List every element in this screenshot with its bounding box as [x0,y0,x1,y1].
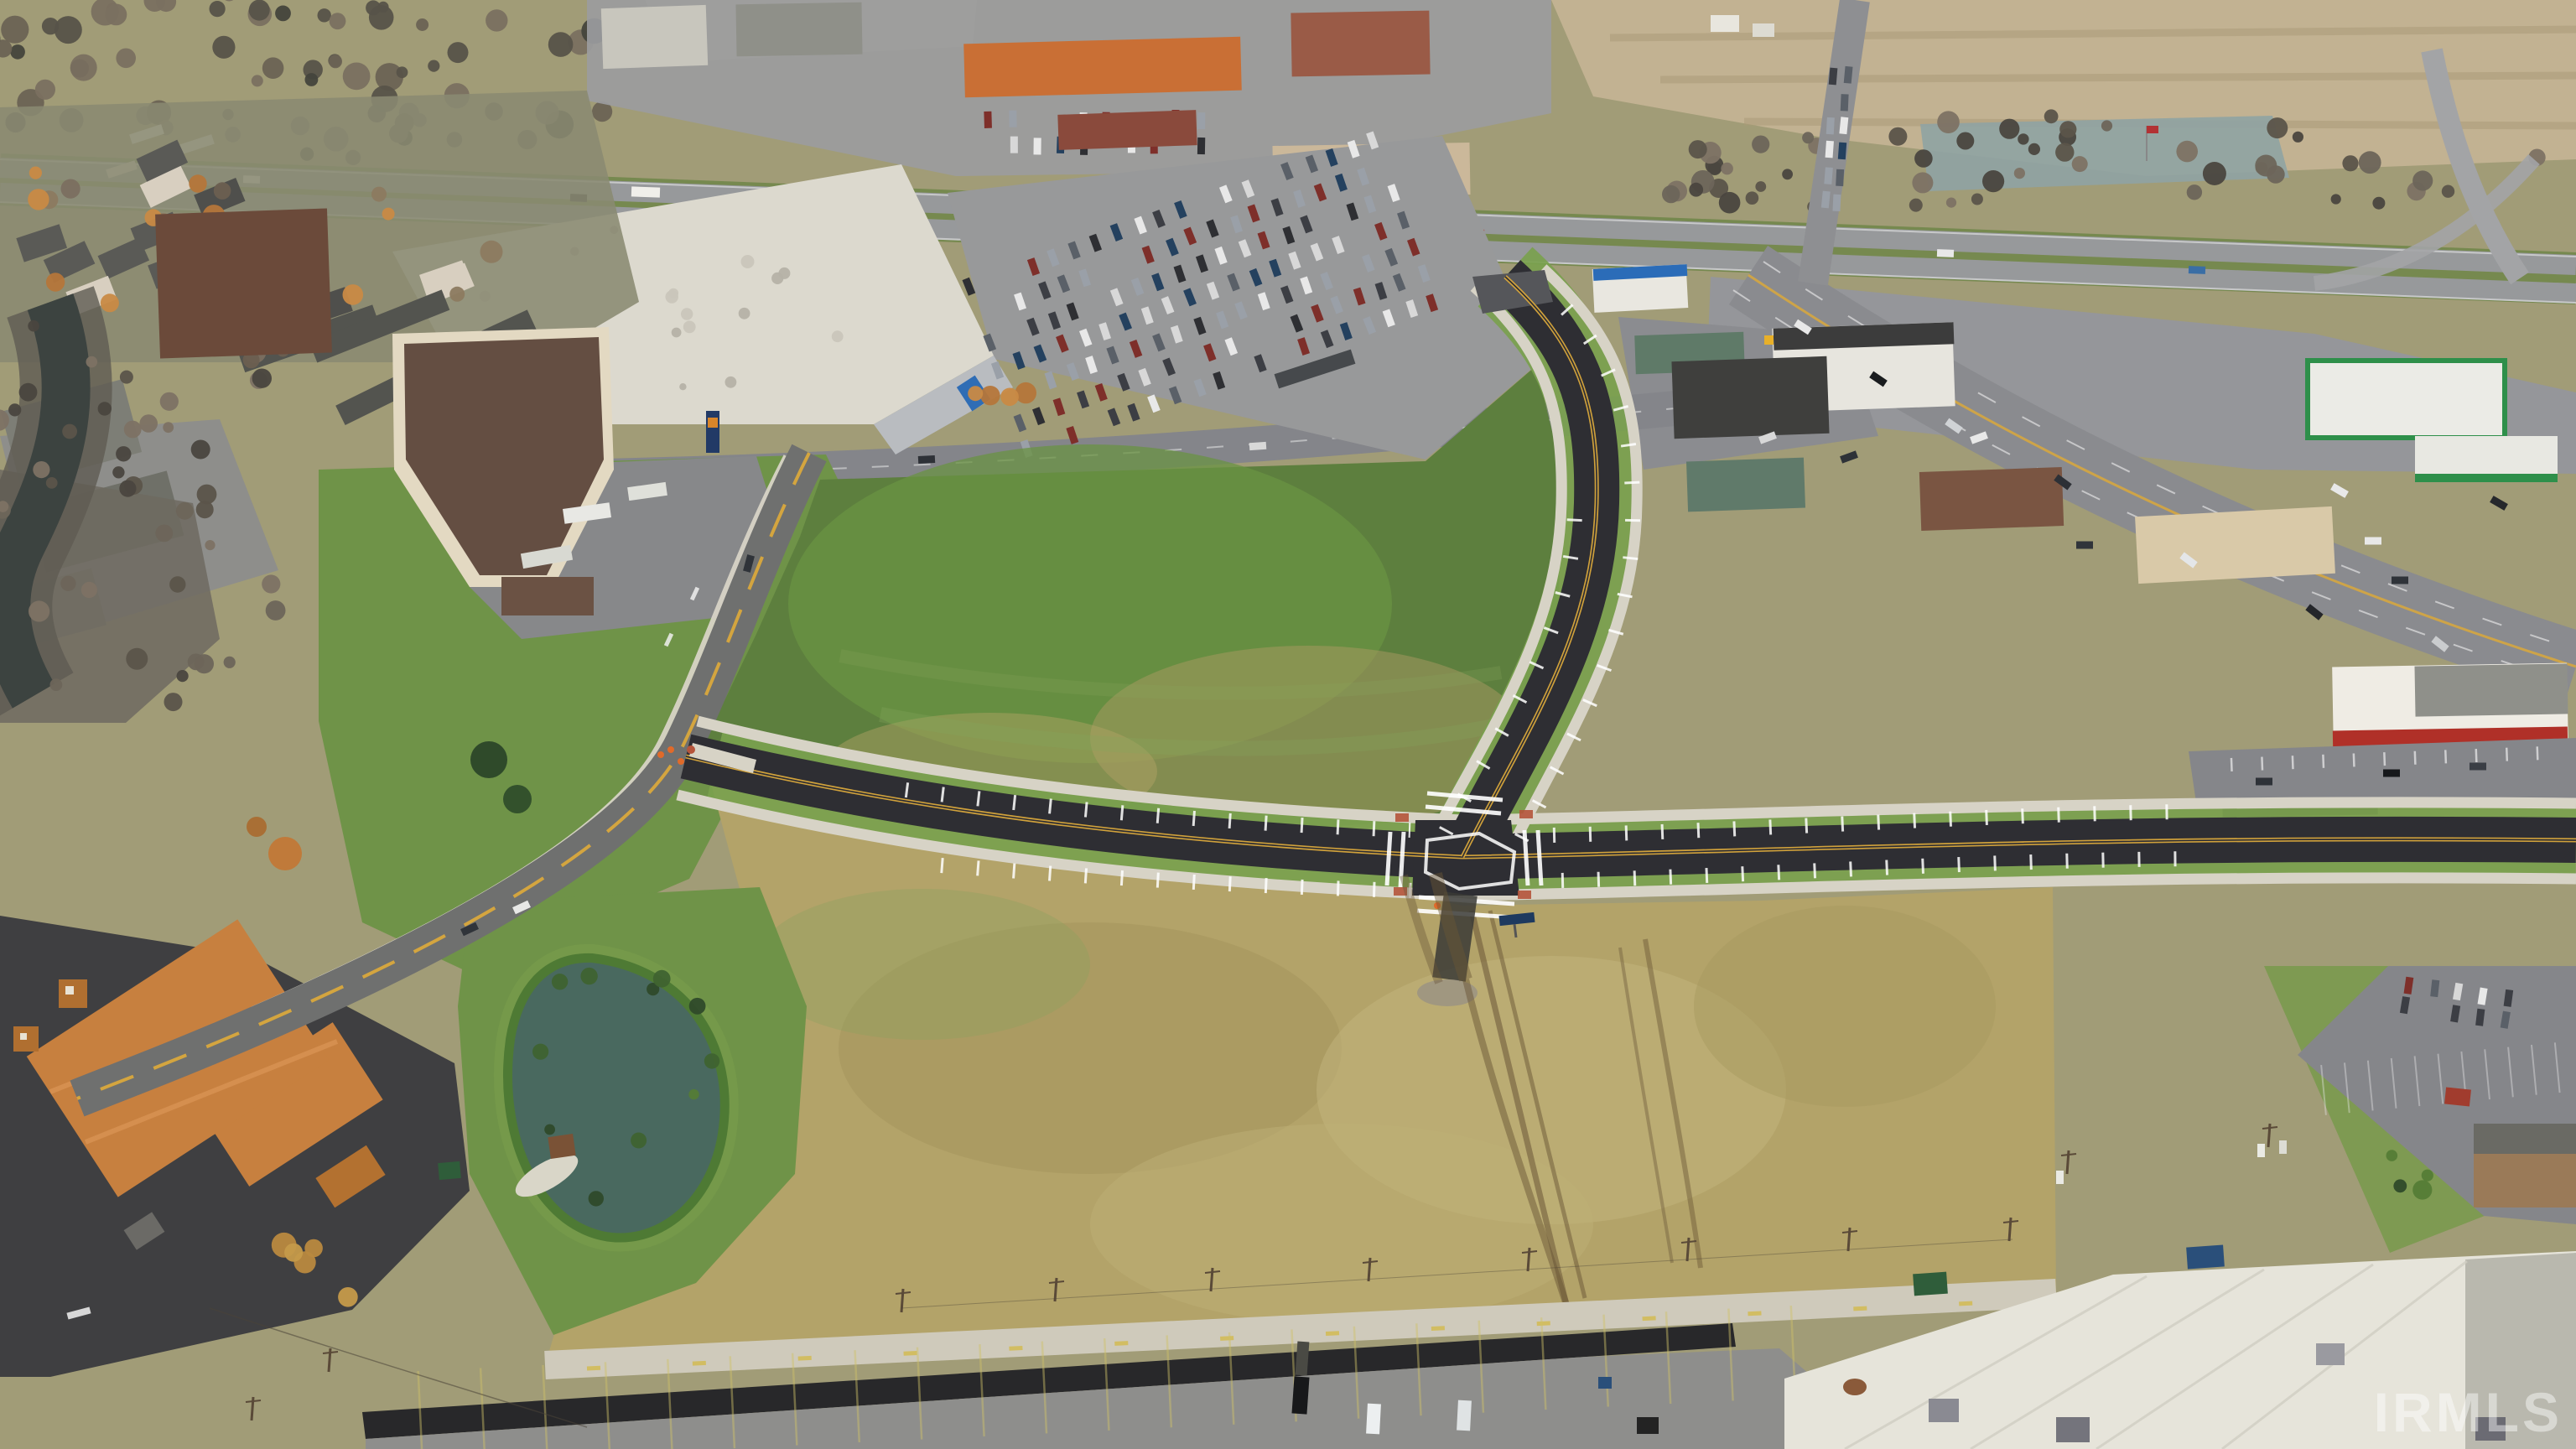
forest-top-left [548,32,574,57]
river-trees [33,461,49,478]
dirt-mottle [1694,906,1996,1107]
residential-trees [449,287,465,302]
bp-store-stripe [2415,474,2558,482]
forest-top-left [275,6,291,22]
blue-cart [1598,1377,1612,1389]
residential-trees [214,182,231,200]
treeline-right [2342,155,2358,171]
treeline-right [2203,162,2226,185]
comfort-pylon-sign [706,411,719,453]
pond-shrubs [688,1089,699,1099]
walmart-lot-trees [968,386,983,401]
treeline-right [2442,185,2454,198]
walmart-roof-units [739,308,750,319]
residential-trees [189,174,206,192]
cupola-window [20,1033,27,1040]
river-trees [98,402,112,415]
forest-top-left [105,4,127,26]
walmart-roof-units [683,321,696,334]
green-dumpster [1913,1272,1948,1296]
rooftop-unit [2056,1417,2090,1442]
forest-top-left [397,66,408,78]
pond-shrubs [653,970,671,988]
walmart-roof-units [666,290,678,303]
river-trees [81,582,97,598]
burger-king-lot-car [2392,577,2408,584]
forest-top-left [343,63,371,91]
home-depot-lot-cars [1197,112,1205,129]
forest-top-left [448,42,469,63]
trash-bins [1637,1417,1659,1434]
sign-post [1514,924,1516,937]
pond-shrubs [544,1124,555,1135]
river-trees [124,421,142,439]
forest-top-left [305,73,319,86]
river-trees [8,403,21,416]
us-flag [2147,126,2158,133]
splitter-nose [687,745,695,754]
cross-street-traffic [1836,169,1844,186]
river-trees [29,600,49,621]
forest-top-left [212,36,235,59]
treeline-right [2267,117,2288,138]
blue-dumpster [2186,1244,2225,1269]
home-depot-lot-cars [1033,138,1041,154]
forest-top-left [486,9,507,31]
treeline-right [1782,169,1793,179]
bp-canopy [2308,361,2505,438]
dark-shingle-building [1671,356,1829,439]
wooden-kiosk [548,1134,575,1159]
conifer-tree [503,785,532,813]
autumn-shrubs [284,1244,303,1262]
home-depot-lot-cars [1009,111,1016,127]
treeline-right [1888,127,1907,146]
white-car [1457,1400,1472,1431]
pond-shrubs [552,974,568,989]
river-trees [266,600,286,621]
autumn-tree [247,817,267,837]
walmart-roof-units [725,377,737,388]
river-trees [120,371,133,384]
brick-restaurant [1919,467,2064,531]
residential-trees [61,179,80,199]
river-trees [139,414,158,433]
walmart-roof-units [778,267,790,279]
residential-trees [343,284,364,305]
treeline-right [1956,132,1974,150]
farmhouse [1753,23,1774,37]
hedge-shrubs [2412,1180,2432,1199]
cross-street-traffic [1841,94,1849,111]
walmart-lot-trees [1000,388,1019,407]
forest-top-left [10,44,25,60]
forest-top-left [318,8,331,22]
frontage-car [918,455,935,464]
burger-king-building [2135,506,2335,584]
river-trees [177,670,189,682]
residential-trees [382,208,395,221]
river-trees [224,657,236,668]
river-trees [126,648,148,670]
watermark: IRMLS [2374,1380,2563,1444]
treeline-right [1752,136,1769,153]
river-trees [62,424,77,439]
treeline-right [2255,155,2277,177]
porte-cochere [501,577,594,615]
hotel-northwest [155,208,332,358]
forest-top-left [55,16,82,44]
river-trees [46,477,58,489]
river-trees [262,574,280,593]
highway-vehicle [2189,266,2205,274]
forest-top-left [116,49,136,69]
treeline-right [2055,143,2074,161]
rooftop-unit [1929,1399,1959,1422]
curb-ramp-pad [1518,891,1531,899]
treeline-right [1937,111,1960,133]
walmart-roof-units [681,308,693,319]
river-trees [169,576,185,592]
traffic-cone [678,758,684,765]
forest-top-left [1,16,29,44]
comfort-sign-logo [708,418,718,428]
treeline-right [1914,149,1933,168]
utility-box [438,1161,461,1180]
treeline-right [2293,132,2303,143]
treeline-right [1719,192,1741,214]
treeline-right [2014,168,2025,179]
river-trees [119,480,136,497]
residential-trees [480,241,503,263]
kfc-lot-car [2383,770,2400,777]
treeline-right [1912,172,1933,193]
residential-trees [46,273,65,291]
river-trees [86,356,98,368]
brick-building-roof [2474,1124,2576,1154]
treeline-right [1689,140,1707,158]
treeline-right [1662,185,1680,203]
cross-street-traffic [1824,167,1833,184]
treeline-right [2044,109,2059,123]
forest-top-left [35,80,55,100]
walmart-lot-trees [980,386,1000,405]
treeline-right [2059,121,2076,138]
treeline-right [1721,163,1733,175]
treeline-right [1999,119,2019,139]
river-trees [155,525,173,543]
kfc-lot-car [2470,763,2486,771]
pole-sign [2257,1144,2265,1157]
hedge-shrubs [2386,1150,2398,1161]
retail-building [735,3,862,57]
river-trees [160,392,179,411]
forest-top-left [70,55,97,81]
pond-shrubs [532,1044,548,1060]
traffic-cone [657,751,664,758]
kfc-roof-gray [2414,663,2568,716]
treeline-right [1946,198,1956,208]
walmart-roof-units [832,330,844,342]
walmart-roof-units [741,255,755,268]
forest-top-left [416,18,428,31]
cross-street-traffic [1826,117,1835,134]
traffic-cone [667,746,674,753]
cross-street-traffic [1829,68,1838,86]
cupola-window [65,986,74,995]
burger-king-lot-car [2365,538,2381,545]
hedge-shrubs [2393,1179,2407,1192]
forest-top-left [42,18,59,34]
pond-shrubs [689,998,706,1015]
cross-street-traffic [1826,141,1834,158]
white-car [1366,1404,1381,1435]
pole-sign [2279,1140,2287,1154]
autumn-shrubs [304,1239,323,1258]
home-depot-lot-cars [1197,138,1205,154]
burger-king-lot-car [2076,542,2093,549]
walmart-roof-units [672,328,682,338]
walmart-lot-trees [1015,382,1036,403]
treeline-right [2372,197,2385,210]
autumn-shrubs [338,1287,358,1307]
river-trees [205,540,215,550]
highway-vehicle [1937,249,1954,257]
conifer-tree [470,741,507,778]
forest-top-left [366,0,381,15]
mcdonalds-arches-sign [1764,335,1774,345]
frontage-car [1249,442,1267,450]
green-roof-office [1686,458,1805,512]
forest-top-left [428,60,439,72]
river-trees [28,320,39,332]
river-trees [164,693,183,711]
treeline-right [1909,199,1923,212]
black-pickup [1291,1376,1309,1414]
pond-shrubs [631,1133,647,1149]
river-trees [196,501,214,518]
red-dumpster [2444,1087,2471,1106]
treeline-right [2072,156,2088,172]
pole-sign [2056,1171,2064,1184]
forest-top-left [262,57,284,79]
retail-building [601,5,708,69]
river-trees [116,446,131,461]
treeline-right [2176,141,2198,163]
home-depot-lot-cars [1010,137,1018,153]
residential-trees [29,167,42,179]
treeline-right [1746,191,1759,205]
home-depot-building [963,37,1242,98]
roof-rust-stain [1843,1379,1867,1395]
river-trees [252,369,272,388]
cross-street-traffic [1838,143,1846,160]
forest-top-left [249,0,270,21]
scene-canvas [0,0,2576,1449]
treeline-right [1802,132,1814,143]
curb-ramp-pad [1519,810,1533,818]
treeline-right [2101,120,2112,131]
home-depot-lot-cars [984,112,992,128]
forest-top-left [252,75,263,86]
river-trees [112,466,124,478]
residential-trees [101,293,119,312]
kfc-lot-car [2256,778,2272,786]
treeline-right [2331,194,2341,204]
treeline-right [1755,181,1766,192]
treeline-right [2359,151,2381,174]
treeline-right [2187,184,2202,200]
river-trees [60,576,75,591]
curb-ramp-pad [1395,813,1409,822]
residential-trees [371,187,387,202]
rooftop-unit [2316,1343,2345,1365]
pond-shrubs [589,1191,604,1206]
hedge-shrubs [2422,1170,2433,1182]
river-trees [195,654,214,673]
treeline-right [2028,143,2040,155]
river-trees [191,440,210,460]
red-roof-inn [1057,110,1197,150]
treeline-right [1982,170,2004,192]
highway-truck [631,186,660,197]
walmart-roof-units [679,383,686,390]
aerial-photo: IRMLS [0,0,2576,1449]
river-trees [163,422,174,433]
forest-top-left [330,13,346,29]
treeline-right [2018,133,2028,144]
river-trees [176,502,194,520]
trailer [1296,1342,1310,1376]
treeline-right [1971,194,1983,205]
river-trees [19,383,38,402]
cross-street-traffic [1844,66,1853,84]
forest-top-left [210,1,226,17]
brick-hotel [1291,11,1430,77]
residential-trees [28,189,49,210]
treeline-right [2412,170,2433,190]
pond-shrubs [704,1053,719,1068]
cross-street-traffic [1832,195,1841,211]
autumn-tree [268,837,302,870]
treeline-right [1689,183,1703,197]
pond-shrubs [580,968,597,984]
forest-top-left [329,55,342,68]
farmhouse [1711,15,1739,32]
river-trees [50,678,63,691]
